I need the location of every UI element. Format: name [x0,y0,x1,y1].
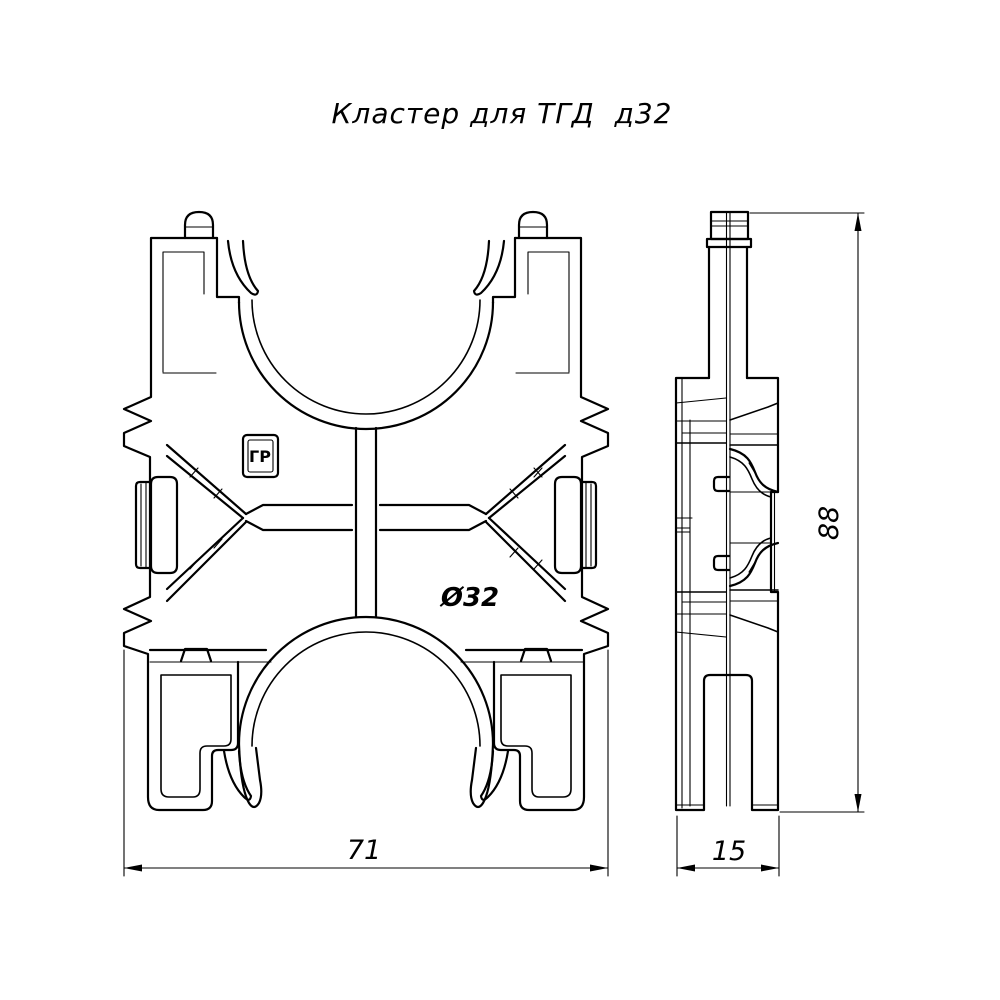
post-channel-right [516,252,569,373]
technical-drawing: Кластер для ТГД д32 [0,0,1000,1000]
side-collar [707,239,751,247]
dim88-arrow-bottom [855,794,862,812]
bottom-finger-right [481,751,508,800]
dimension-height: 88 [750,213,864,812]
side-center-rib [727,212,731,806]
side-window-right [555,477,581,573]
rib-diagonal-lower-left [167,518,246,601]
dim88-extension-lines [750,213,864,812]
side-view [676,212,778,810]
diameter-label: Ø32 [439,583,499,613]
logo-text: ГР [249,447,271,466]
bottom-cradle-inner-arc [252,632,480,746]
side-post [709,247,747,378]
bottom-cradle-outer-arc [239,617,493,744]
top-nub-right [519,212,547,238]
dim71-arrow-left [124,865,142,872]
rib-horizontal [246,505,486,530]
dimension-front-width: 71 [124,650,608,876]
foot-pocket-right [501,675,571,797]
dim88-value: 88 [814,506,845,540]
top-cradle-inner-arc [252,300,480,414]
dim15-value: 15 [712,836,746,867]
dim15-arrow-right [761,865,779,872]
post-channel-left [163,252,216,373]
top-finger-left [228,241,258,295]
dim71-value: 71 [347,835,381,866]
side-gusset-ticks [730,463,771,572]
side-window-left [151,477,177,573]
dim88-arrow-top [855,213,862,231]
top-finger-right [474,241,504,295]
side-tab-right [581,482,596,568]
top-nub-left [185,212,213,238]
top-cradle-outer-arc [239,302,493,429]
drawing-title: Кластер для ТГД д32 [332,97,673,130]
manufacturer-logo: ГР [243,435,278,477]
rib-diagonal-upper-left [167,445,246,518]
side-tab-right-lines [586,483,591,567]
drawing-sheet: Кластер для ТГД д32 [0,0,1000,1000]
dim71-arrow-right [590,865,608,872]
bottom-finger-left [224,751,251,800]
center-stem [356,428,376,617]
rib-diagonal-upper-right [486,445,565,518]
side-tab-left-lines [141,483,146,567]
dimension-side-width: 15 [677,816,779,876]
foot-pocket-left [161,675,231,797]
front-view: ГР Ø32 [124,212,608,810]
dim15-arrow-left [677,865,695,872]
side-tab-left [136,482,151,568]
